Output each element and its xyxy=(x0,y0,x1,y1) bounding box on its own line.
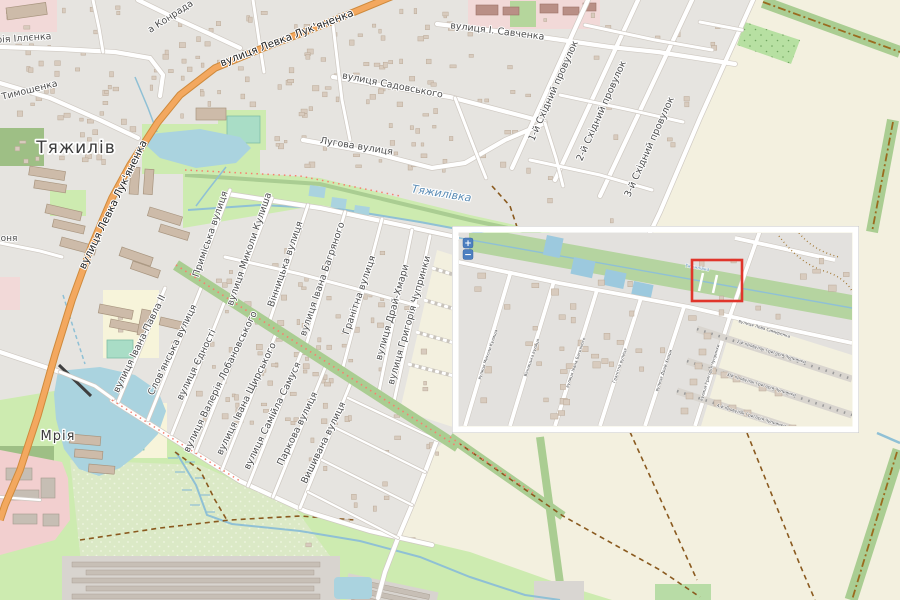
map-viewport[interactable]: ТяжилівМріявулиця Левка Лук'яненкавулиця… xyxy=(0,0,900,600)
zoom-in-button[interactable]: + xyxy=(463,238,473,249)
zoom-out-button-glyph: − xyxy=(464,250,472,260)
zoom-in-button-glyph: + xyxy=(464,239,472,249)
base-map: ТяжилівМріявулиця Левка Лук'яненкавулиця… xyxy=(0,0,900,600)
place-label: Мрія xyxy=(41,429,76,444)
inset-map-content: вулиця Миколи КулишаВінницька вулицявули… xyxy=(454,226,852,448)
place-label: Тяжилів xyxy=(35,138,116,158)
zoom-out-button[interactable]: − xyxy=(463,250,473,261)
road-label: оня xyxy=(1,234,18,244)
inset-map[interactable]: вулиця Миколи КулишаВінницька вулицявули… xyxy=(454,226,852,448)
